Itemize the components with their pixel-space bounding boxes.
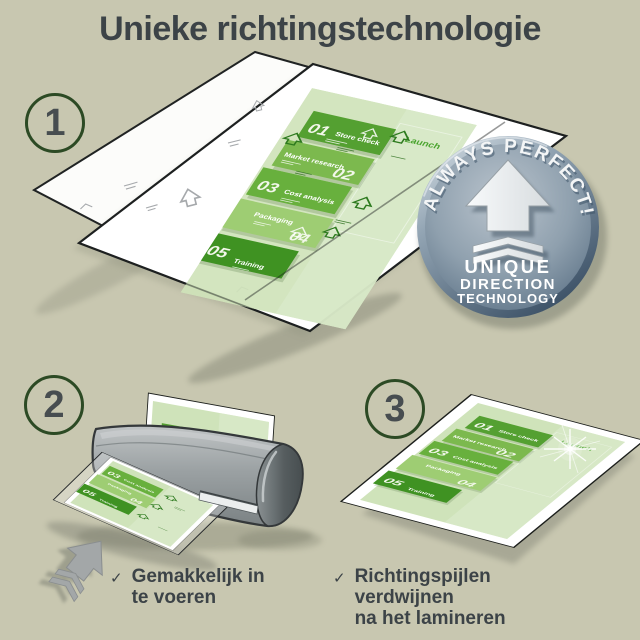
check-icon: ✓ bbox=[333, 568, 346, 629]
page-title: Unieke richtingstechnologie bbox=[0, 10, 640, 49]
step-circle-1: 1 bbox=[25, 93, 85, 153]
step-number-2: 2 bbox=[43, 384, 64, 427]
badge-line-technology: TECHNOLOGY bbox=[457, 291, 559, 306]
bullet-text: Gemakkelijk in te voeren bbox=[132, 566, 265, 608]
step-circle-3: 3 bbox=[365, 379, 425, 439]
bullet-line-2: na het lamineren bbox=[355, 608, 583, 629]
step-number-3: 3 bbox=[384, 388, 405, 431]
step-number-1: 1 bbox=[44, 102, 65, 145]
bullet-line-1: Richtingspijlen verdwijnen bbox=[355, 566, 583, 608]
bullet-line-2: te voeren bbox=[132, 587, 265, 608]
bullet-line-1: Gemakkelijk in bbox=[132, 566, 265, 587]
step-circle-2: 2 bbox=[24, 375, 84, 435]
illustration-canvas: 01 Store check Market research 02 03 Cos… bbox=[0, 0, 640, 640]
badge-line-unique: UNIQUE bbox=[465, 256, 552, 277]
bullet-text: Richtingspijlen verdwijnen na het lamine… bbox=[355, 566, 583, 629]
check-icon: ✓ bbox=[110, 568, 123, 608]
illustration-stage: 01 Store check Market research 02 03 Cos… bbox=[0, 0, 640, 640]
bullet-arrows-disappear: ✓ Richtingspijlen verdwijnen na het lami… bbox=[333, 566, 583, 629]
laminator-cap-shadow bbox=[238, 530, 322, 550]
bullet-easy-feed: ✓ Gemakkelijk in te voeren bbox=[110, 566, 310, 608]
